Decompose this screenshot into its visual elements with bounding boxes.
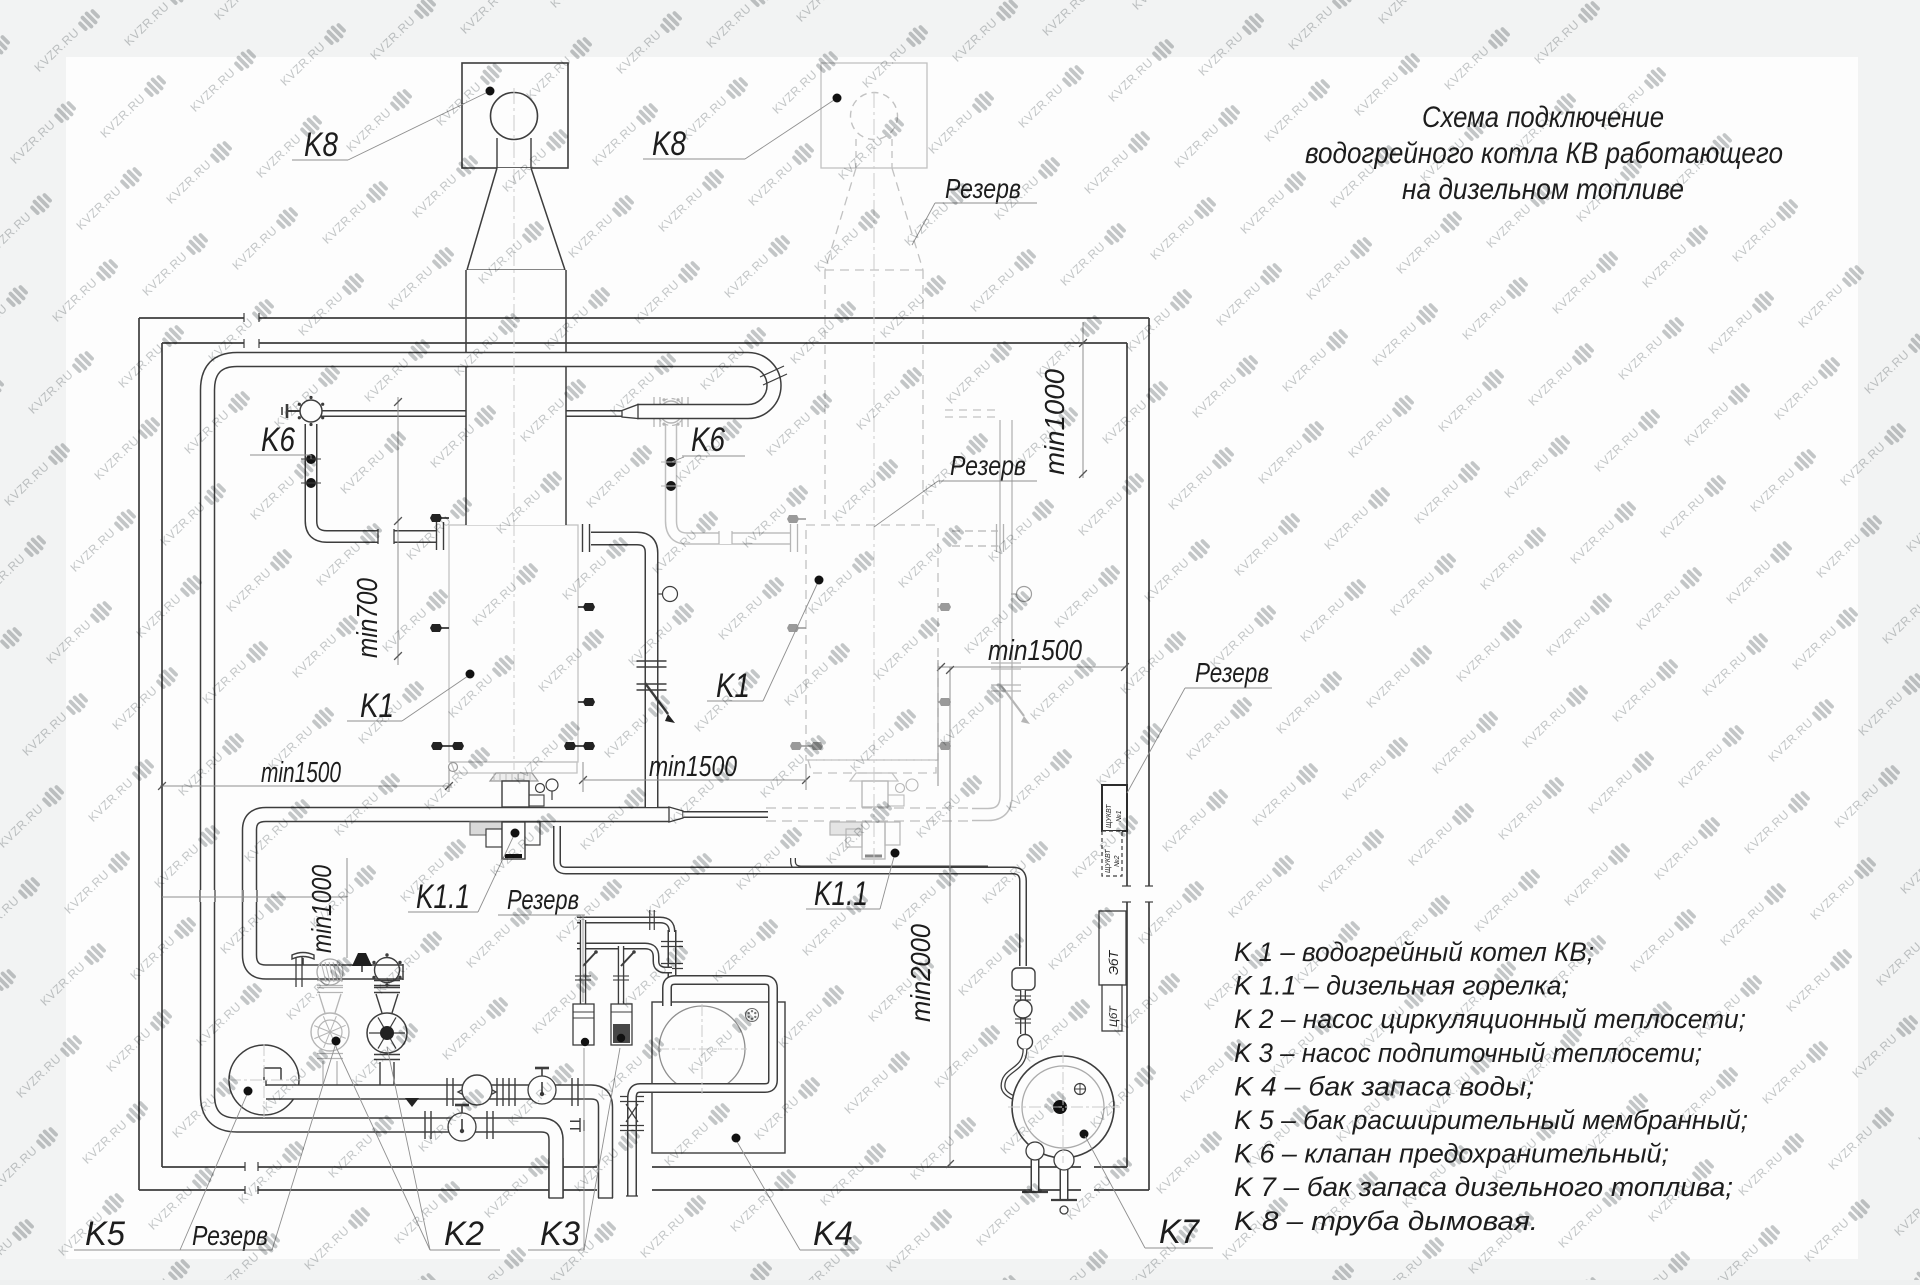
svg-text:K 7 – бак запаса дизельного т: K 7 – бак запаса дизельного топлива; xyxy=(1234,1172,1733,1202)
svg-text:K2: K2 xyxy=(444,1215,484,1253)
svg-text:ЭбТ: ЭбТ xyxy=(1106,950,1121,975)
svg-text:K3: K3 xyxy=(540,1215,580,1253)
svg-text:№2: №2 xyxy=(1114,855,1121,867)
svg-text:K 1 – водогрейный котел КВ;: K 1 – водогрейный котел КВ; xyxy=(1234,937,1594,967)
svg-text:min1500: min1500 xyxy=(988,635,1082,667)
svg-text:ЩУКВТ: ЩУКВТ xyxy=(1106,804,1113,828)
svg-text:min700: min700 xyxy=(352,578,384,658)
svg-text:Резерв: Резерв xyxy=(1195,657,1269,688)
svg-text:№1: №1 xyxy=(1116,810,1123,822)
svg-text:K 8 – труба дымовая.: K 8 – труба дымовая. xyxy=(1234,1206,1538,1236)
svg-text:K 1.1 – дизельная горелка;: K 1.1 – дизельная горелка; xyxy=(1234,971,1569,1001)
svg-text:K8: K8 xyxy=(304,126,338,164)
svg-text:Резерв: Резерв xyxy=(192,1220,268,1251)
